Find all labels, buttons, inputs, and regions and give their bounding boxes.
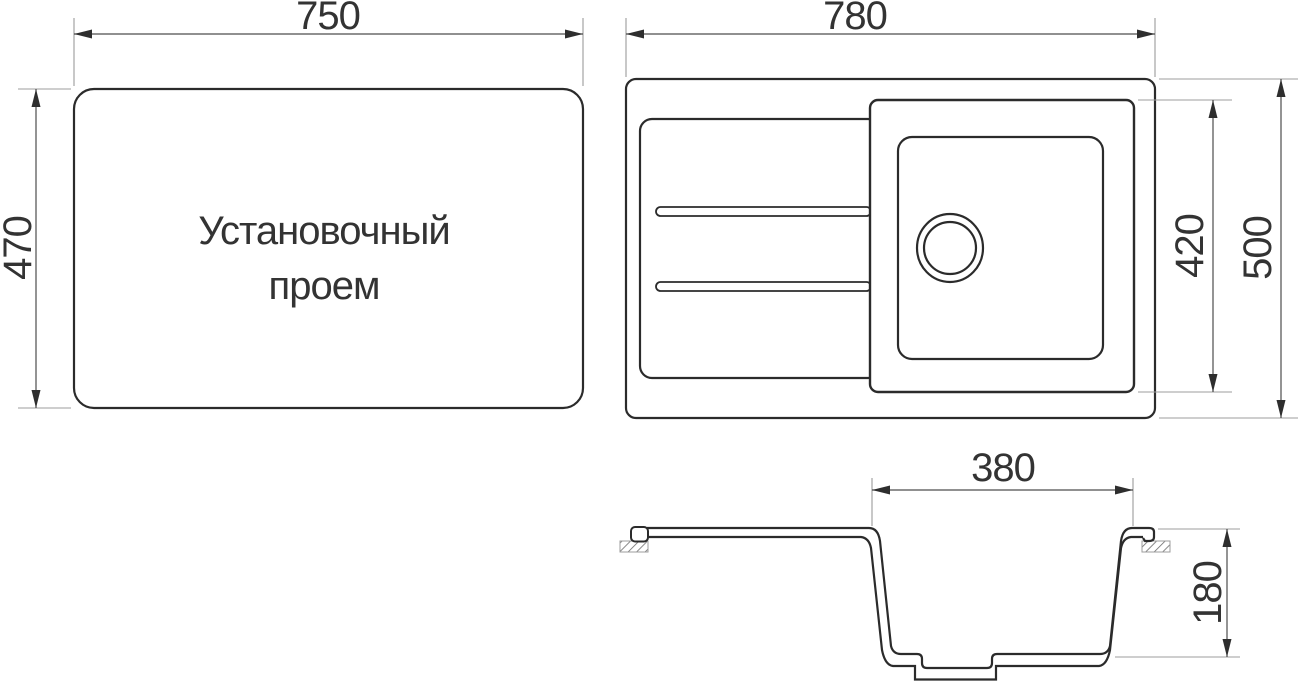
section-profile-outer (647, 537, 1143, 680)
bowl-module-rect (870, 100, 1134, 392)
arrowhead-left (872, 486, 890, 495)
sink-section-view: 380 180 (620, 446, 1240, 680)
dimension-bowl-width-value: 380 (971, 446, 1035, 490)
dimension-bowl-depth-value: 180 (1186, 561, 1230, 625)
arrowhead-right (1115, 486, 1133, 495)
dimension-sink-depth-value: 500 (1236, 216, 1280, 280)
section-profile-inner (647, 528, 1154, 668)
dimension-sink-width: 780 (626, 0, 1155, 77)
arrowhead-top (1209, 100, 1218, 118)
arrowhead-top (1277, 79, 1286, 97)
installation-opening-view: Установочный проем 750 470 (0, 0, 583, 408)
sink-top-view: 780 420 500 (626, 0, 1298, 418)
dimension-bowl-depth: 180 (1115, 529, 1240, 657)
arrowhead-bottom (1223, 639, 1232, 657)
arrowhead-top (32, 89, 41, 107)
dimension-bowl-module-height-value: 420 (1168, 214, 1212, 278)
arrowhead-bottom (1277, 400, 1286, 418)
installation-opening-label-line1: Установочный (198, 209, 449, 253)
arrowhead-left (74, 30, 92, 39)
rim-end-cap-left (631, 527, 648, 542)
dimension-opening-height: 470 (0, 89, 71, 408)
drainboard-groove-top (656, 207, 871, 216)
countertop-hatch-right (1142, 541, 1170, 552)
dimension-bowl-width: 380 (872, 446, 1133, 526)
countertop-hatch-left (620, 541, 648, 552)
sink-dimension-drawing: Установочный проем 750 470 (0, 0, 1300, 681)
arrowhead-left (626, 30, 644, 39)
arrowhead-bottom (1209, 374, 1218, 392)
dimension-opening-height-value: 470 (0, 216, 40, 280)
drainboard-groove-bottom (656, 282, 871, 291)
dimension-sink-width-value: 780 (823, 0, 887, 38)
arrowhead-bottom (32, 390, 41, 408)
dimension-opening-width: 750 (74, 0, 583, 86)
dimension-opening-width-value: 750 (296, 0, 360, 38)
arrowhead-right (1137, 30, 1155, 39)
arrowhead-top (1223, 529, 1232, 547)
installation-opening-label-line2: проем (269, 264, 380, 308)
arrowhead-right (565, 30, 583, 39)
